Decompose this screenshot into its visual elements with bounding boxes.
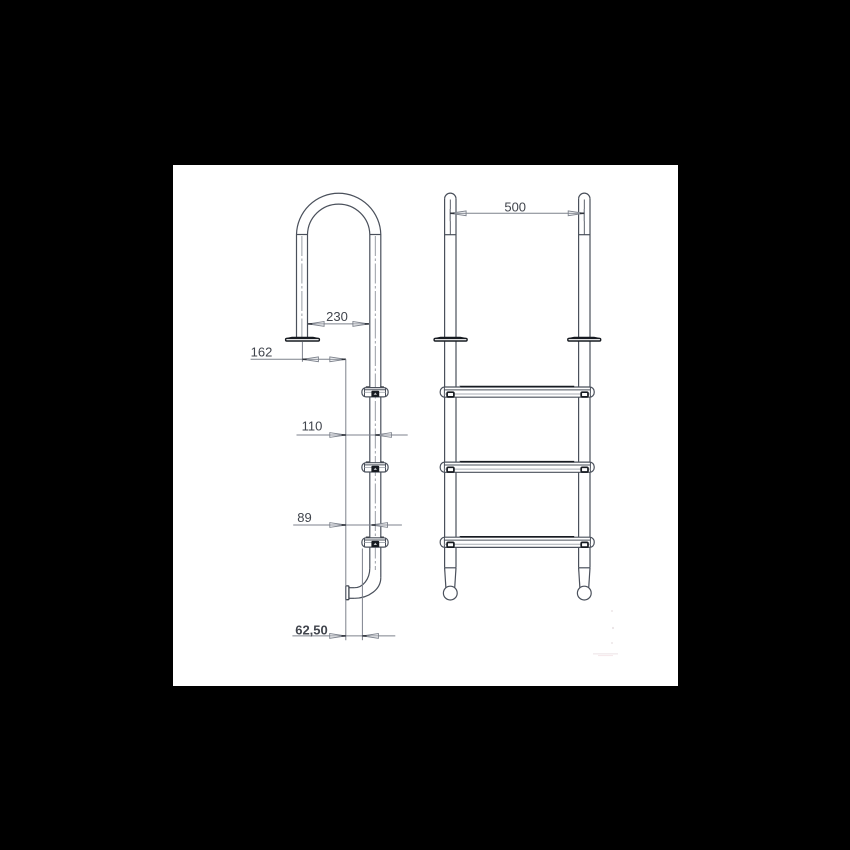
svg-text:110: 110 xyxy=(302,419,323,434)
svg-text:89: 89 xyxy=(297,510,311,525)
svg-text:500: 500 xyxy=(504,199,526,214)
svg-text:162: 162 xyxy=(251,345,273,360)
svg-text:62,50: 62,50 xyxy=(295,622,328,637)
svg-text:230: 230 xyxy=(326,309,348,324)
